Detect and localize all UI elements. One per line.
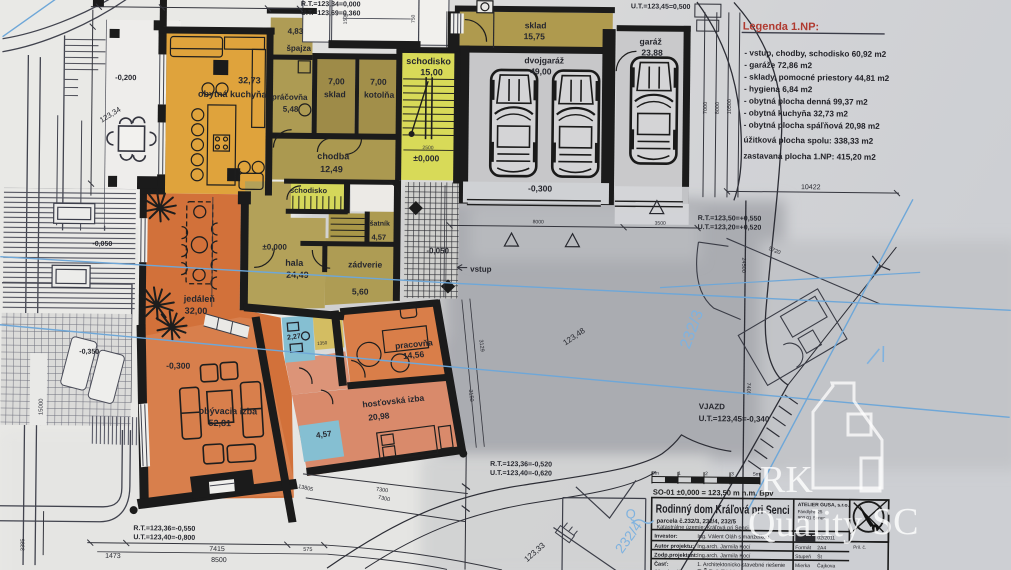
svg-text:hala: hala xyxy=(285,258,304,268)
svg-text:14,56: 14,56 xyxy=(402,349,424,361)
svg-text:3: 3 xyxy=(731,471,734,477)
svg-text:-0,200: -0,200 xyxy=(115,73,136,82)
svg-text:- obytná plocha spáľňová 20,: - obytná plocha spáľňová 20,98 m2 xyxy=(744,120,881,130)
svg-text:Časť:: Časť: xyxy=(654,561,669,568)
svg-text:SC: SC xyxy=(872,501,918,543)
svg-text:-0,300: -0,300 xyxy=(166,360,190,370)
svg-text:R.T.=123,34=0,000: R.T.=123,34=0,000 xyxy=(301,1,361,9)
svg-text:Formát: Formát xyxy=(795,545,812,551)
svg-text:zádverie: zádverie xyxy=(348,259,382,269)
svg-text:15000: 15000 xyxy=(39,398,45,415)
svg-text:Príl. č.: Príl. č. xyxy=(853,545,866,550)
svg-text:Investor:: Investor: xyxy=(654,534,677,540)
svg-text:3500: 3500 xyxy=(655,221,666,227)
svg-text:7,00: 7,00 xyxy=(328,76,345,86)
svg-text:±0,000: ±0,000 xyxy=(413,153,439,163)
svg-text:Legenda 1.NP:: Legenda 1.NP: xyxy=(743,20,820,33)
svg-text:R.T.=123,50=+0,550: R.T.=123,50=+0,550 xyxy=(698,215,762,223)
svg-text:7415: 7415 xyxy=(209,546,225,553)
svg-text:chodba: chodba xyxy=(317,151,350,161)
svg-text:12,49: 12,49 xyxy=(320,164,343,174)
svg-text:dvojgaráž: dvojgaráž xyxy=(524,55,564,65)
svg-text:5,48: 5,48 xyxy=(283,105,299,114)
svg-text:R.T.=123,36=-0,520: R.T.=123,36=-0,520 xyxy=(490,461,552,469)
svg-text:úžitková plocha spolu: 338,3: úžitková plocha spolu: 338,33 m2 xyxy=(743,135,873,145)
svg-text:- garáže 72,86 m2: - garáže 72,86 m2 xyxy=(744,60,812,70)
svg-text:5m: 5m xyxy=(753,472,760,478)
svg-text:8000: 8000 xyxy=(533,219,544,225)
svg-text:sklad: sklad xyxy=(324,89,346,99)
svg-text:-0,050: -0,050 xyxy=(426,246,449,255)
svg-text:32,00: 32,00 xyxy=(185,306,208,316)
svg-text:špajza: špajza xyxy=(286,44,311,53)
svg-text:U.T.=123,45=-0,340: U.T.=123,45=-0,340 xyxy=(699,414,770,424)
svg-text:U.T.=123,45=0,500: U.T.=123,45=0,500 xyxy=(631,3,691,11)
svg-text:Mierka: Mierka xyxy=(795,563,810,569)
svg-text:1350: 1350 xyxy=(317,340,328,346)
svg-text:šatník: šatník xyxy=(370,221,390,228)
svg-text:práčovňa: práčovňa xyxy=(272,93,308,102)
svg-text:15,75: 15,75 xyxy=(524,31,546,41)
svg-text:vstup: vstup xyxy=(470,265,492,274)
svg-text:garáž: garáž xyxy=(640,36,662,46)
svg-text:U.T.=123,20=+0,520: U.T.=123,20=+0,520 xyxy=(698,224,762,232)
svg-text:23,88: 23,88 xyxy=(641,47,663,57)
svg-text:RK: RK xyxy=(760,459,813,501)
svg-text:750: 750 xyxy=(411,14,417,23)
svg-text:- obytná kuchyňa 32,73 m2: - obytná kuchyňa 32,73 m2 xyxy=(744,108,849,118)
svg-text:jedáleň: jedáleň xyxy=(183,294,215,304)
svg-text:4,83: 4,83 xyxy=(288,27,304,36)
svg-text:-0,050: -0,050 xyxy=(92,241,112,248)
svg-text:1: 1 xyxy=(678,471,681,477)
svg-text:52,81: 52,81 xyxy=(208,418,231,428)
svg-text:Čajkova: Čajkova xyxy=(817,562,835,569)
svg-text:obývacia izba: obývacia izba xyxy=(199,406,259,417)
svg-text:8500: 8500 xyxy=(211,557,227,564)
svg-text:3385: 3385 xyxy=(20,539,26,551)
svg-text:VJAZD: VJAZD xyxy=(699,402,726,411)
svg-text:Q: Q xyxy=(626,506,636,521)
svg-text:U.T.=123,69=0,360: U.T.=123,69=0,360 xyxy=(301,10,361,18)
svg-text:-0,350: -0,350 xyxy=(79,349,99,356)
svg-text:Ing.arch. Jarmila Kocí: Ing.arch. Jarmila Kocí xyxy=(697,544,751,551)
svg-text:obytná kuchyňa: obytná kuchyňa xyxy=(198,89,268,100)
svg-text:24500: 24500 xyxy=(740,257,746,272)
svg-text:Katastrálne územie: Kráľová pr: Katastrálne územie: Kráľová pri Senci xyxy=(656,525,748,532)
svg-text:R.T.=123,36=-0,550: R.T.=123,36=-0,550 xyxy=(133,525,195,533)
svg-text:- hygiena 6,84 m2: - hygiena 6,84 m2 xyxy=(744,84,813,94)
svg-text:schodisko: schodisko xyxy=(290,186,328,195)
svg-text:U.T.=123,40=-0,800: U.T.=123,40=-0,800 xyxy=(133,534,195,542)
svg-text:schodisko: schodisko xyxy=(406,56,451,66)
svg-text:2A4: 2A4 xyxy=(817,545,826,551)
svg-text:±0,000: ±0,000 xyxy=(262,242,287,251)
svg-text:7,00: 7,00 xyxy=(370,77,387,87)
svg-text:2: 2 xyxy=(705,471,708,477)
svg-text:0m: 0m xyxy=(652,471,659,477)
svg-text:zastavaná plocha 1.NP: 415,20: zastavaná plocha 1.NP: 415,20 m2 xyxy=(743,151,876,161)
svg-text:4,57: 4,57 xyxy=(371,233,386,242)
svg-text:10422: 10422 xyxy=(801,184,821,191)
svg-text:sklad: sklad xyxy=(525,20,547,30)
svg-text:Stupeň: Stupeň xyxy=(795,554,811,560)
svg-text:32,73: 32,73 xyxy=(238,75,261,85)
svg-text:Quality: Quality xyxy=(748,503,862,545)
svg-text:575: 575 xyxy=(303,547,312,553)
svg-text:-0,300: -0,300 xyxy=(528,183,552,193)
svg-text:15,00: 15,00 xyxy=(420,67,443,77)
svg-text:- obytná plocha denná 99,37: - obytná plocha denná 99,37 m2 xyxy=(744,96,868,106)
svg-text:- sklady, pomocné priestory 4: - sklady, pomocné priestory 44,81 m2 xyxy=(744,72,890,83)
svg-text:2500: 2500 xyxy=(422,145,433,151)
svg-text:Št: Št xyxy=(817,553,822,560)
svg-text:1473: 1473 xyxy=(105,553,121,560)
svg-text:Zodp.projektant:: Zodp.projektant: xyxy=(654,553,698,559)
svg-text:5,60: 5,60 xyxy=(352,286,369,296)
svg-text:U.T.=123,40=-0,620: U.T.=123,40=-0,620 xyxy=(490,470,552,478)
svg-text:49,00: 49,00 xyxy=(530,66,552,76)
svg-text:SO-01 ±0,000 = 123,50 m n.m. B: SO-01 ±0,000 = 123,50 m n.m. Bpv xyxy=(653,488,775,498)
svg-text:Autor projektu:: Autor projektu: xyxy=(654,544,694,550)
svg-text:- vstup, chodby, schodisko 60: - vstup, chodby, schodisko 60,92 m2 xyxy=(744,48,886,58)
svg-text:Ing.arch. Jarmila Kocí: Ing.arch. Jarmila Kocí xyxy=(697,553,751,560)
svg-text:kotolňa: kotolňa xyxy=(364,90,395,100)
